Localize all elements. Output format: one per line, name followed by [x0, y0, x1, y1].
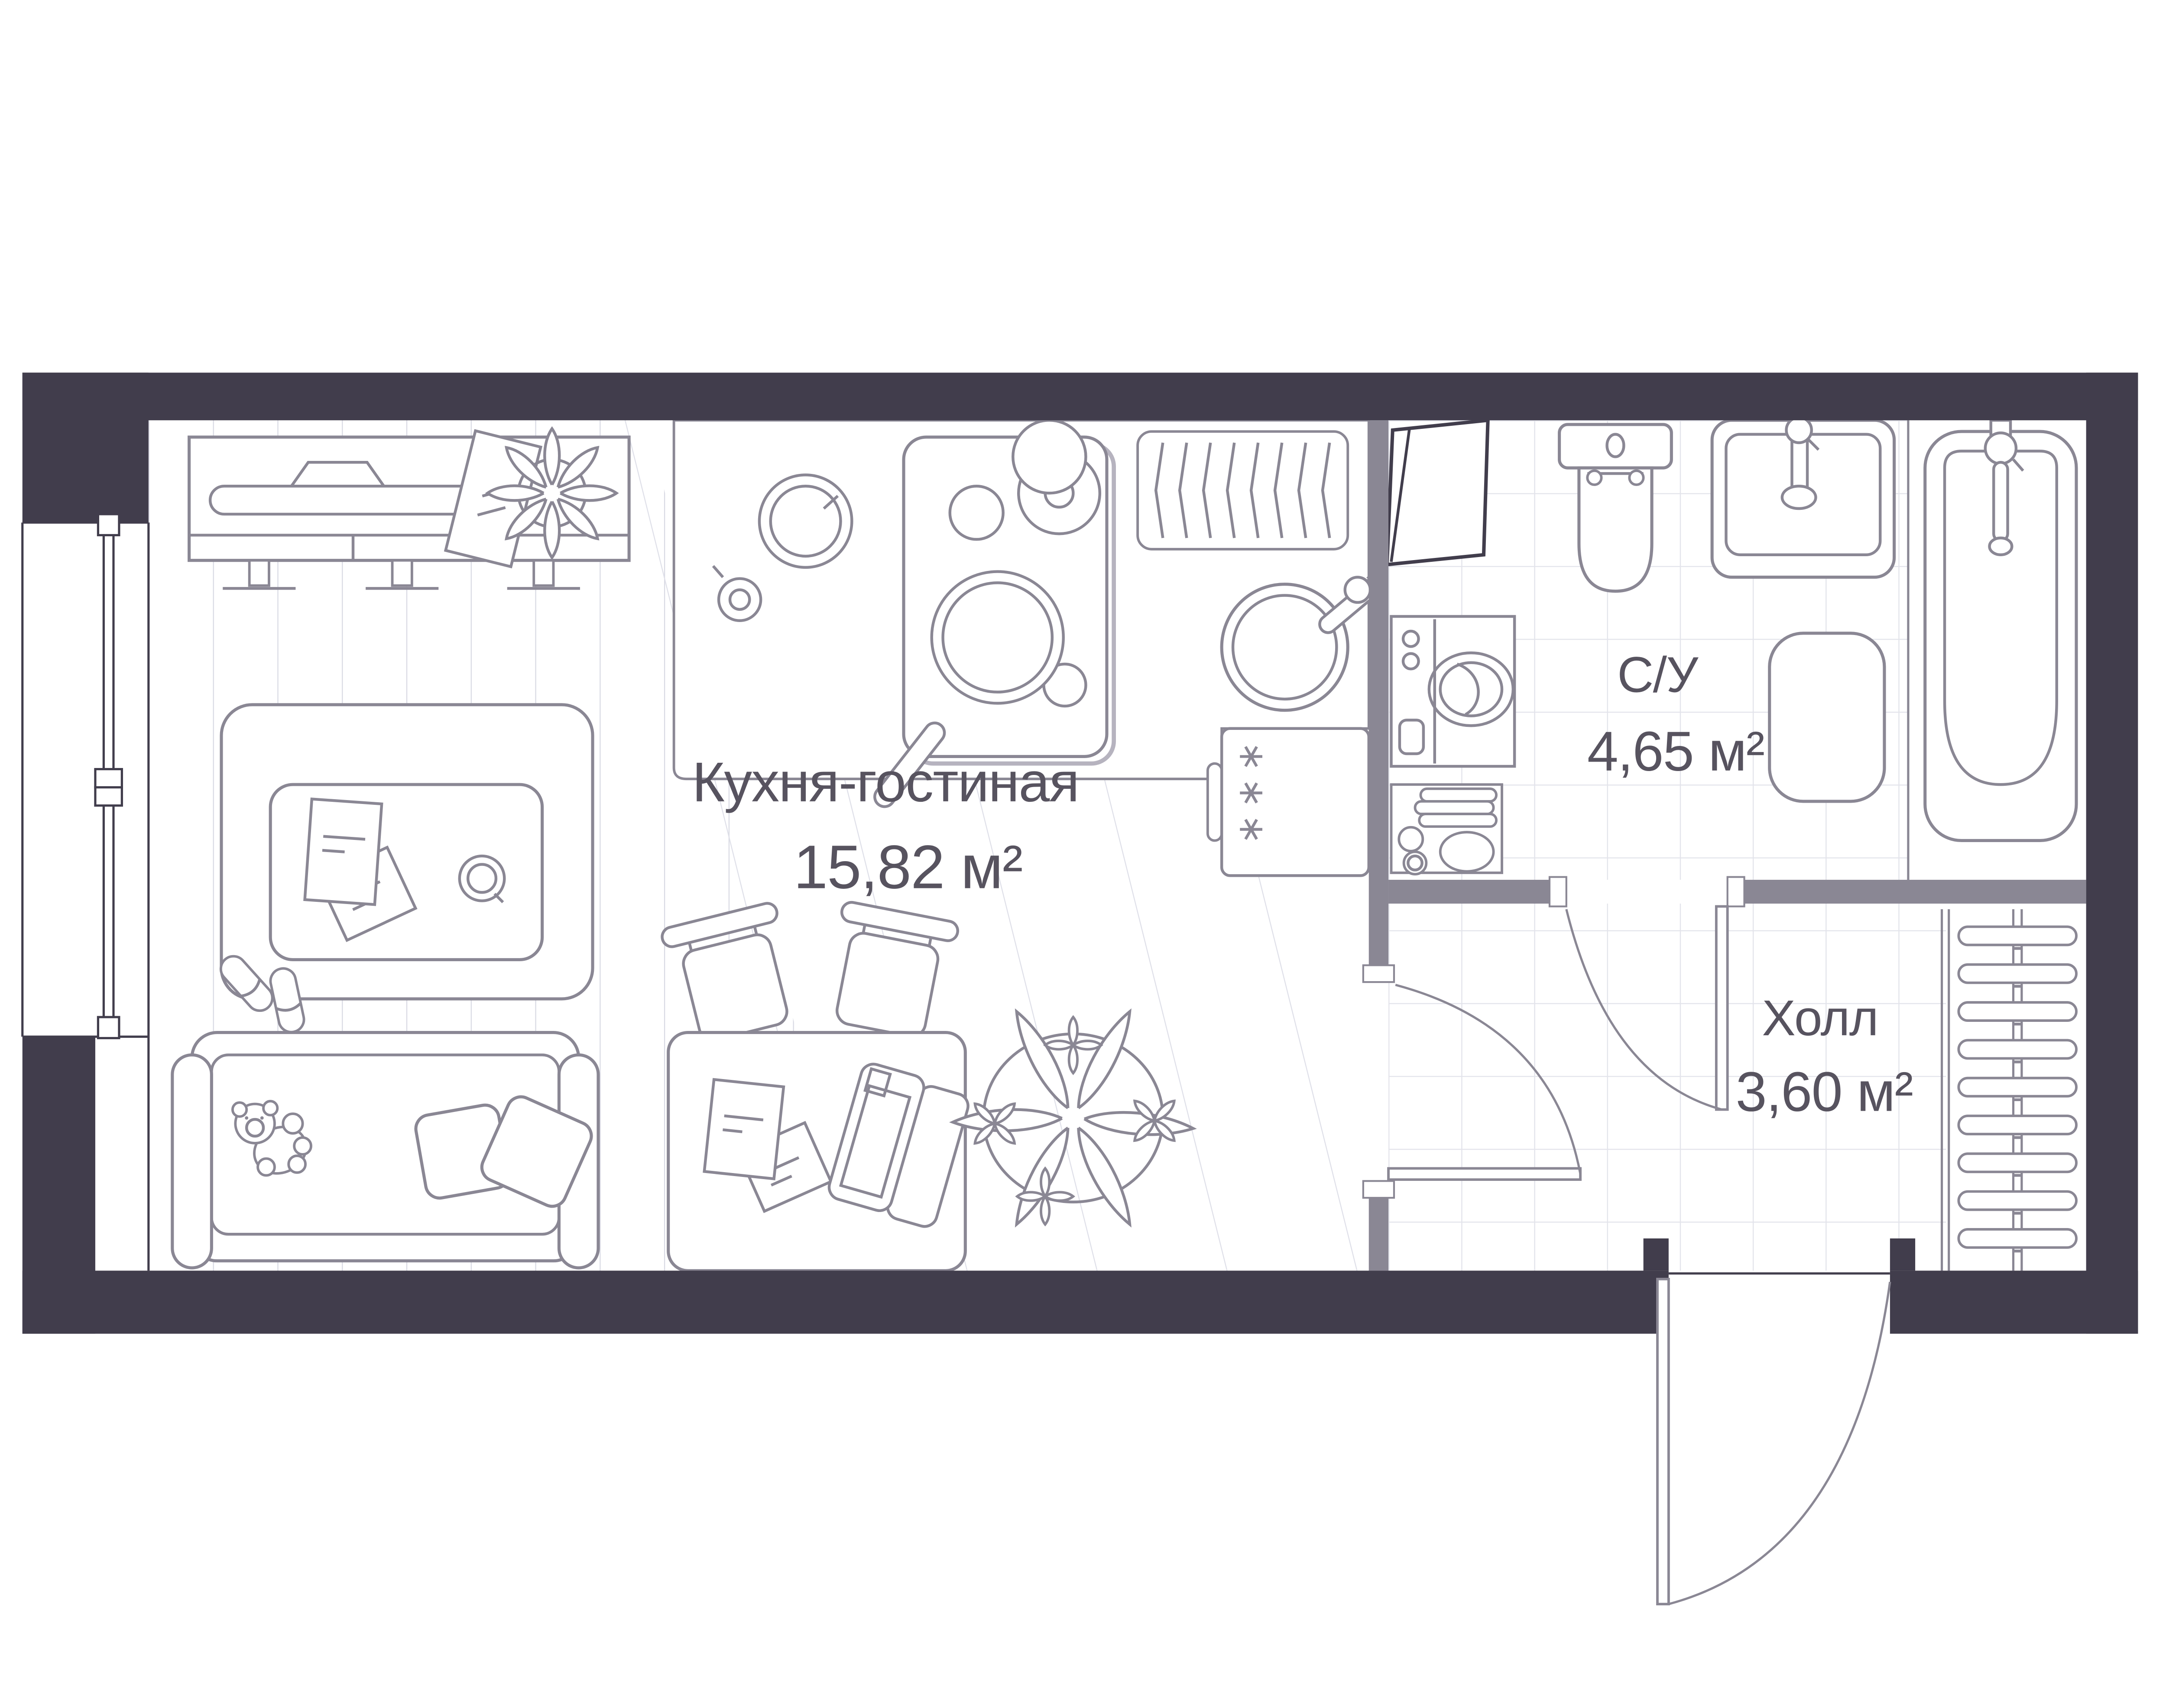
bathtub-icon	[1925, 420, 2076, 840]
fridge-icon	[1208, 729, 1369, 876]
bath-mat-icon	[1770, 633, 1884, 801]
pot-icon	[1013, 420, 1086, 493]
electric-panel-icon	[1387, 420, 1488, 564]
hall-zone	[1942, 909, 2076, 1270]
kitchen-living-area: 15,82 м²	[794, 833, 1022, 901]
sofa-icon	[172, 1033, 598, 1268]
floor-plan: Кухня-гостиная 15,82 м² С/У 4,65 м² Холл…	[0, 0, 2166, 1625]
washbasin-icon	[1712, 418, 1894, 577]
cup-icon	[460, 856, 504, 902]
radiator-icon	[1138, 431, 1348, 549]
floor-plan-page: Кухня-гостиная 15,82 м² С/У 4,65 м² Холл…	[0, 0, 2166, 1625]
hall-label: Холл	[1762, 990, 1878, 1046]
hall-area: 3,60 м²	[1736, 1061, 1913, 1123]
towel-shelf-icon	[1391, 784, 1502, 874]
bathroom-area: 4,65 м²	[1587, 720, 1764, 783]
window-icon	[23, 514, 149, 1038]
washing-machine-icon	[1391, 616, 1515, 766]
wardrobe-hangers-icon	[1942, 909, 2076, 1270]
kitchen-living-label: Кухня-гостиная	[692, 751, 1079, 813]
entrance-door-icon	[1657, 1274, 1890, 1604]
bathroom-label: С/У	[1617, 647, 1699, 703]
